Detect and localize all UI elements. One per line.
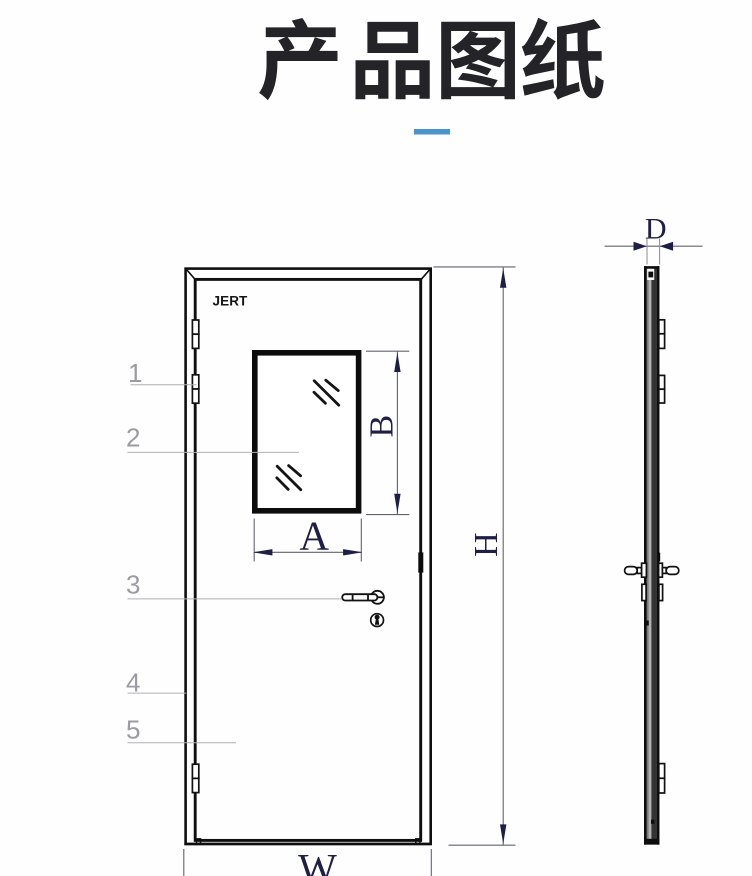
svg-text:B: B	[364, 415, 401, 438]
svg-text:2: 2	[126, 423, 140, 453]
svg-text:5: 5	[126, 714, 140, 744]
svg-text:W: W	[298, 845, 337, 876]
svg-text:JERT: JERT	[213, 294, 249, 309]
svg-text:1: 1	[128, 358, 142, 388]
svg-text:3: 3	[126, 570, 140, 600]
svg-text:H: H	[468, 532, 505, 557]
svg-text:A: A	[299, 513, 329, 559]
svg-text:D: D	[645, 213, 667, 246]
